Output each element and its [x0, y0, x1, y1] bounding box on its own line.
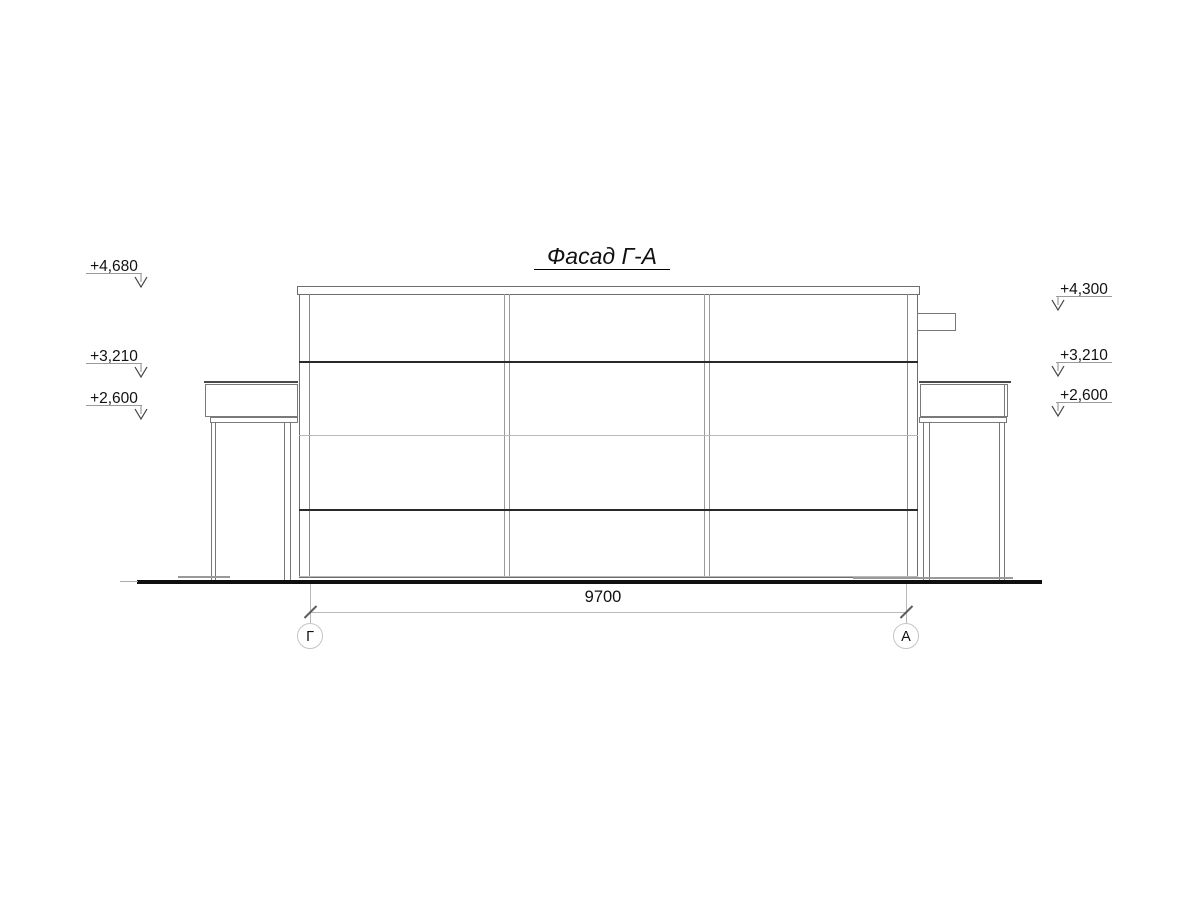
plinth-line	[299, 576, 918, 577]
left-canopy-slab-top	[204, 381, 298, 383]
extension-line	[906, 584, 907, 623]
right-canopy-slab	[920, 384, 1008, 417]
transom-line-light	[299, 435, 918, 436]
elevation-mark-label: +4,680	[86, 259, 142, 274]
right-canopy-beam	[919, 417, 1007, 423]
axis-marker-g: Г	[297, 623, 323, 649]
ground-line-lead	[120, 581, 138, 582]
left-wall-inner-line	[309, 294, 310, 578]
dimension-line	[310, 612, 907, 613]
left-canopy-post	[284, 422, 291, 581]
elevation-arrow-icon	[1050, 297, 1066, 312]
footing-step	[178, 576, 230, 578]
facade-outline	[299, 294, 918, 578]
elevation-arrow-icon	[1050, 363, 1066, 378]
right-canopy-slab-top	[919, 381, 1011, 383]
footing-step	[853, 577, 1013, 579]
wall-pipe-stub	[917, 313, 956, 331]
extension-line	[310, 584, 311, 623]
drawing-title: Фасад Г-А	[534, 243, 670, 270]
transom-line-dark	[299, 509, 918, 511]
elevation-arrow-icon	[133, 364, 149, 379]
elevation-mark-label: +4,300	[1056, 282, 1112, 297]
axis-marker-a: А	[893, 623, 919, 649]
right-canopy-post	[923, 422, 930, 581]
right-wall-inner-line	[907, 294, 908, 578]
dimension-value: 9700	[553, 588, 653, 607]
elevation-arrow-icon	[1050, 403, 1066, 418]
left-canopy-slab	[205, 384, 298, 417]
elevation-arrow-icon	[133, 406, 149, 421]
elevation-mark-label: +2,600	[86, 391, 142, 406]
facade-drawing-sheet: Фасад Г-А 9700 Г А +4,680 +3,210 +2,600	[0, 0, 1200, 900]
right-canopy-slab-inner-line	[1004, 384, 1005, 417]
elevation-arrow-icon	[133, 274, 149, 289]
left-canopy-post	[211, 422, 216, 581]
right-canopy-post	[999, 422, 1005, 581]
transom-line-dark	[299, 361, 918, 363]
elevation-mark-label: +3,210	[1056, 348, 1112, 363]
elevation-mark-label: +3,210	[86, 349, 142, 364]
elevation-mark-label: +2,600	[1056, 388, 1112, 403]
